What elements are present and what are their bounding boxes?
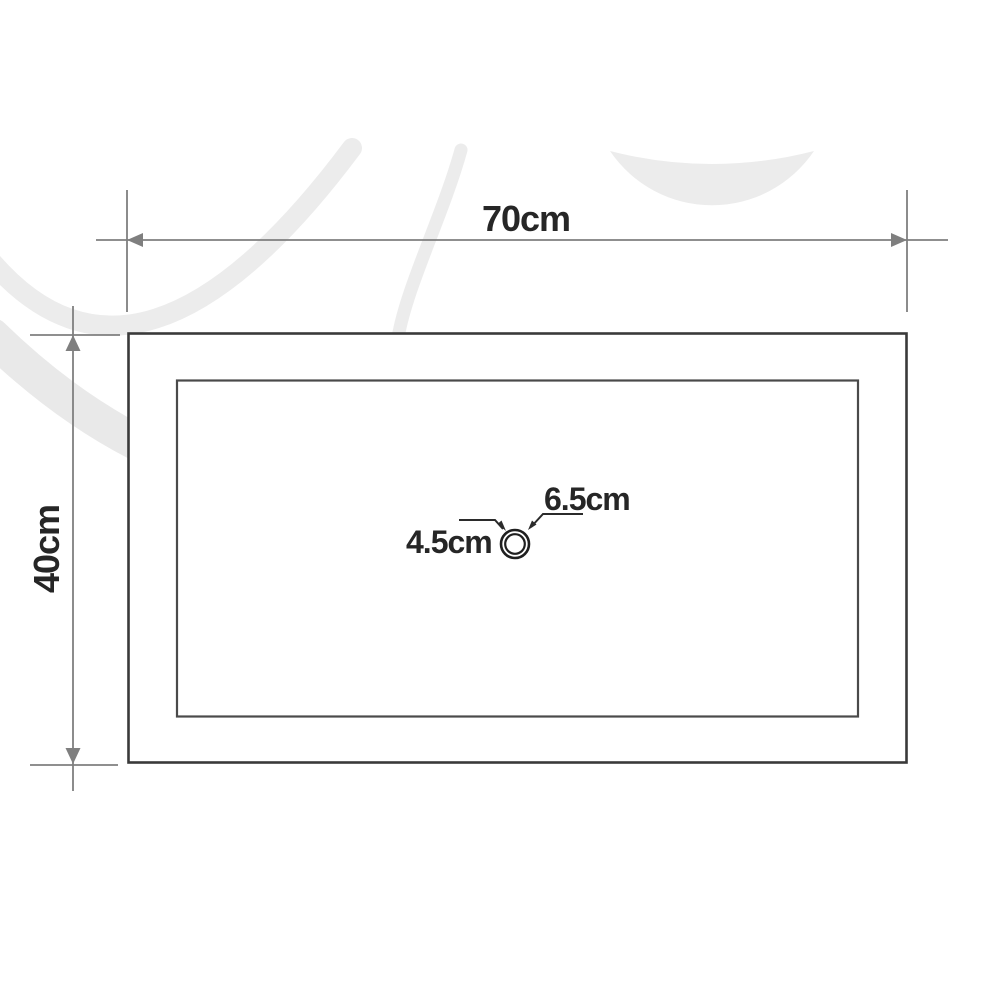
- arrow-left-icon: [127, 233, 143, 247]
- drain-outer-label: 6.5cm: [544, 481, 630, 517]
- basin-inner-rect: [177, 381, 858, 717]
- arrow-right-icon: [891, 233, 907, 247]
- depth-dimension-label: 40cm: [26, 505, 67, 593]
- technical-drawing-svg: 70cm 40cm 6.5cm 4.5cm: [0, 0, 1000, 1000]
- watermark-arc-left-thin: [0, 148, 352, 326]
- dimension-diagram: 70cm 40cm 6.5cm 4.5cm: [0, 0, 1000, 1000]
- width-dimension-label: 70cm: [482, 198, 570, 239]
- arrow-down-icon: [66, 748, 81, 764]
- arrow-up-icon: [66, 335, 81, 351]
- watermark-arc-center-thin: [398, 150, 461, 338]
- drain-inner-label: 4.5cm: [406, 524, 492, 560]
- watermark-crescent-top-right: [610, 151, 814, 205]
